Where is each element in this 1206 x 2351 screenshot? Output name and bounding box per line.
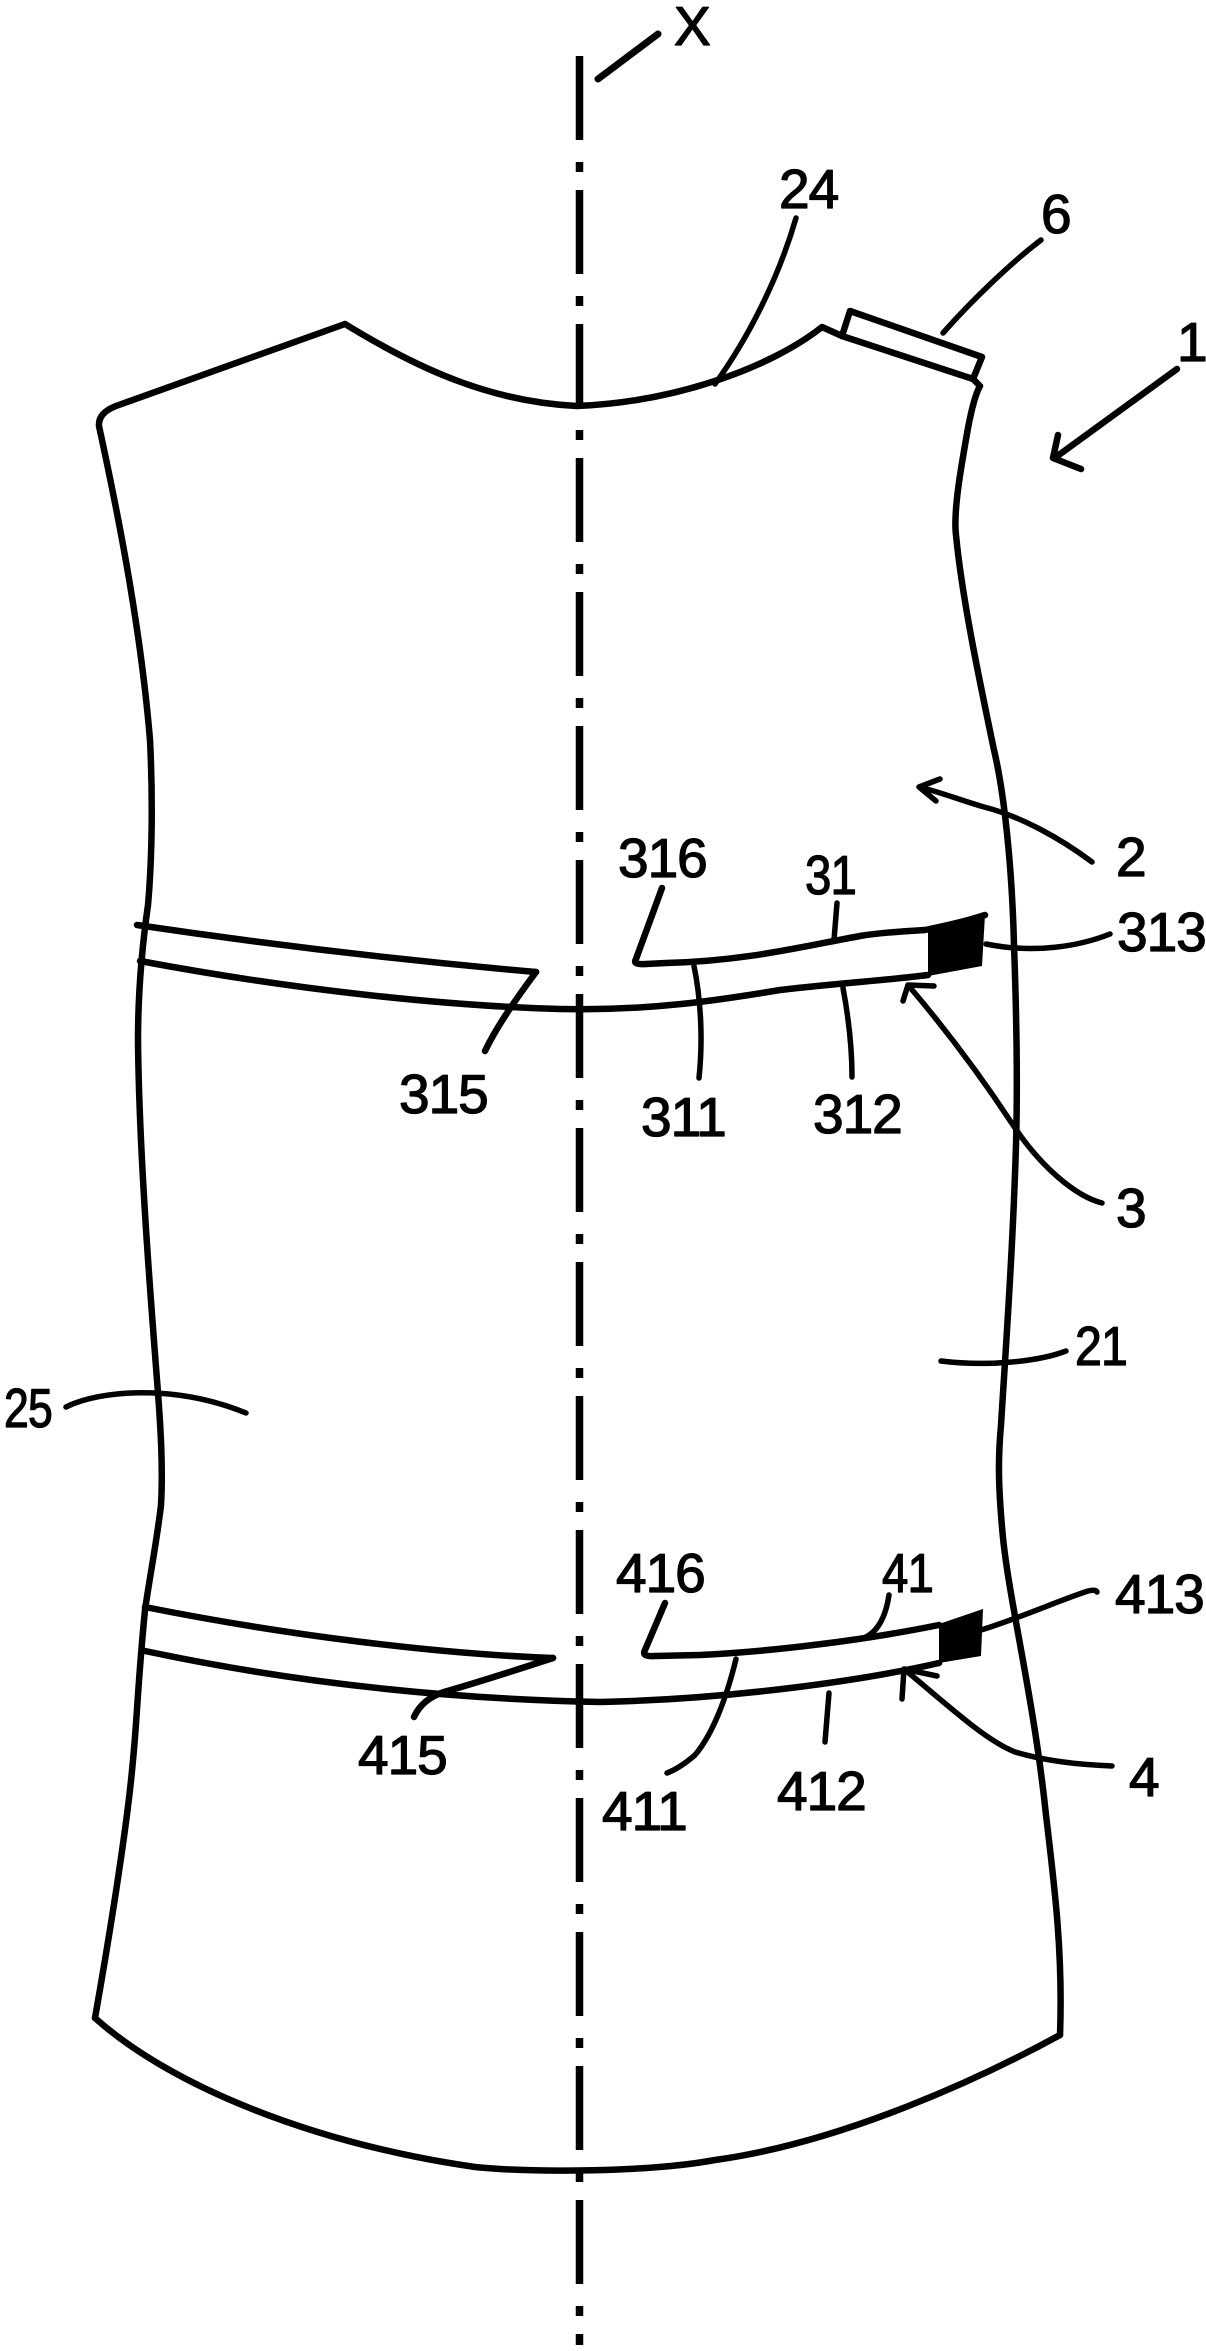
svg-text:24: 24 (779, 158, 838, 220)
svg-text:311: 311 (641, 1086, 726, 1148)
svg-text:1: 1 (1177, 311, 1206, 373)
svg-text:415: 415 (358, 1724, 447, 1786)
svg-text:313: 313 (1117, 901, 1206, 963)
svg-text:31: 31 (805, 844, 856, 906)
svg-text:4: 4 (1129, 1746, 1159, 1808)
svg-text:25: 25 (4, 1377, 52, 1439)
svg-text:316: 316 (618, 827, 707, 889)
svg-text:2: 2 (1116, 826, 1146, 888)
svg-text:312: 312 (813, 1083, 902, 1145)
svg-text:413: 413 (1115, 1563, 1204, 1625)
svg-text:21: 21 (1075, 1315, 1127, 1377)
svg-text:412: 412 (777, 1760, 866, 1822)
svg-text:3: 3 (1116, 1177, 1146, 1239)
svg-text:315: 315 (399, 1063, 488, 1125)
svg-text:6: 6 (1041, 183, 1071, 245)
svg-text:X: X (674, 0, 710, 57)
svg-text:416: 416 (616, 1542, 705, 1604)
svg-text:411: 411 (602, 1780, 687, 1842)
